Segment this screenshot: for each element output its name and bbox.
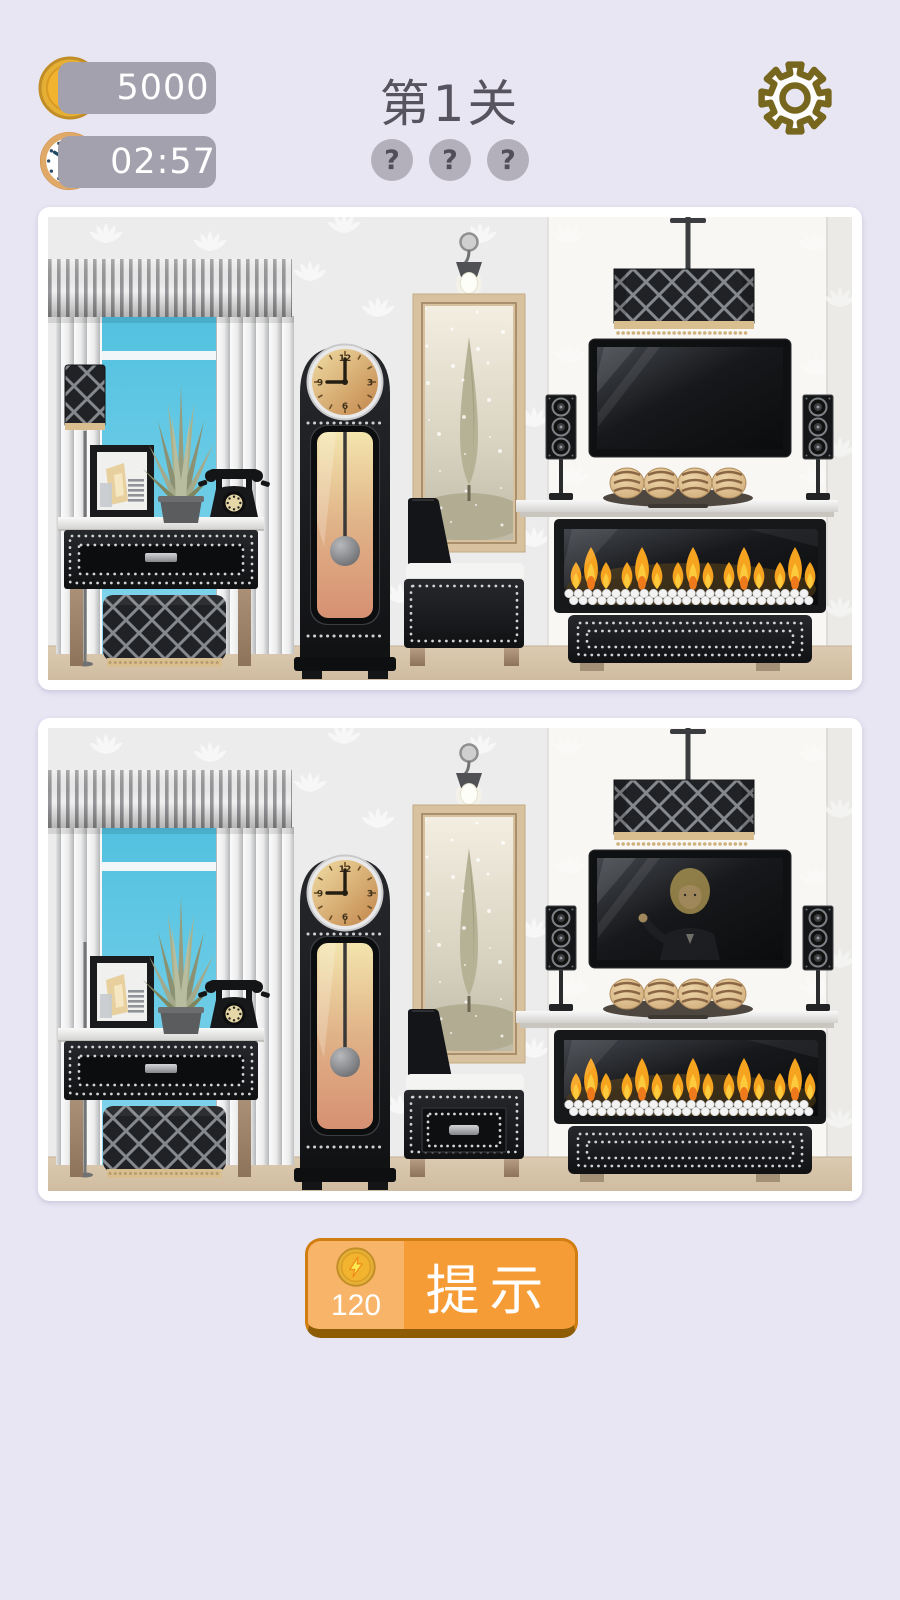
hint-button[interactable]: 120 提示 [305,1238,578,1338]
hint-button-label: 提示 [404,1241,575,1329]
wall-sconce [456,234,482,300]
settings-button[interactable] [752,55,838,141]
picture-frame [90,956,154,1028]
svg-text:6: 6 [342,402,348,412]
tv-screen[interactable] [589,850,791,968]
hint-cost-panel: 120 [308,1241,404,1329]
scene-card-top[interactable]: 12 3 6 9 [38,207,862,690]
hint-slot: ? [487,139,529,181]
wall-sconce [456,745,482,811]
scene-image-bottom[interactable]: 12 3 6 9 [48,728,852,1191]
hint-slot: ? [429,139,471,181]
gear-icon [752,55,838,141]
svg-text:9: 9 [317,890,323,900]
svg-text:6: 6 [342,913,348,923]
ottoman [103,1106,226,1178]
coin-icon [336,1247,376,1287]
hearth-bench [568,1126,812,1182]
svg-text:3: 3 [367,379,373,389]
fireplace [554,519,826,615]
grandfather-clock: 12 3 6 9 [294,345,396,680]
grandfather-clock: 12 3 6 9 [294,856,396,1191]
hint-slots: ? ? ? [0,139,900,181]
scene-image-top[interactable]: 12 3 6 9 [48,217,852,680]
hearth-bench [568,615,812,671]
hint-cost-value: 120 [331,1289,381,1324]
hint-slot: ? [371,139,413,181]
picture-frame [90,445,154,517]
fireplace [554,1030,826,1126]
coin-icon [336,1247,376,1289]
app-background: { "header": { "coins": "5000", "timer": … [0,0,900,1600]
svg-text:3: 3 [367,890,373,900]
ottoman [103,595,226,667]
scene-card-bottom[interactable]: 12 3 6 9 [38,718,862,1201]
svg-text:9: 9 [317,379,323,389]
tv-screen[interactable] [589,339,791,457]
